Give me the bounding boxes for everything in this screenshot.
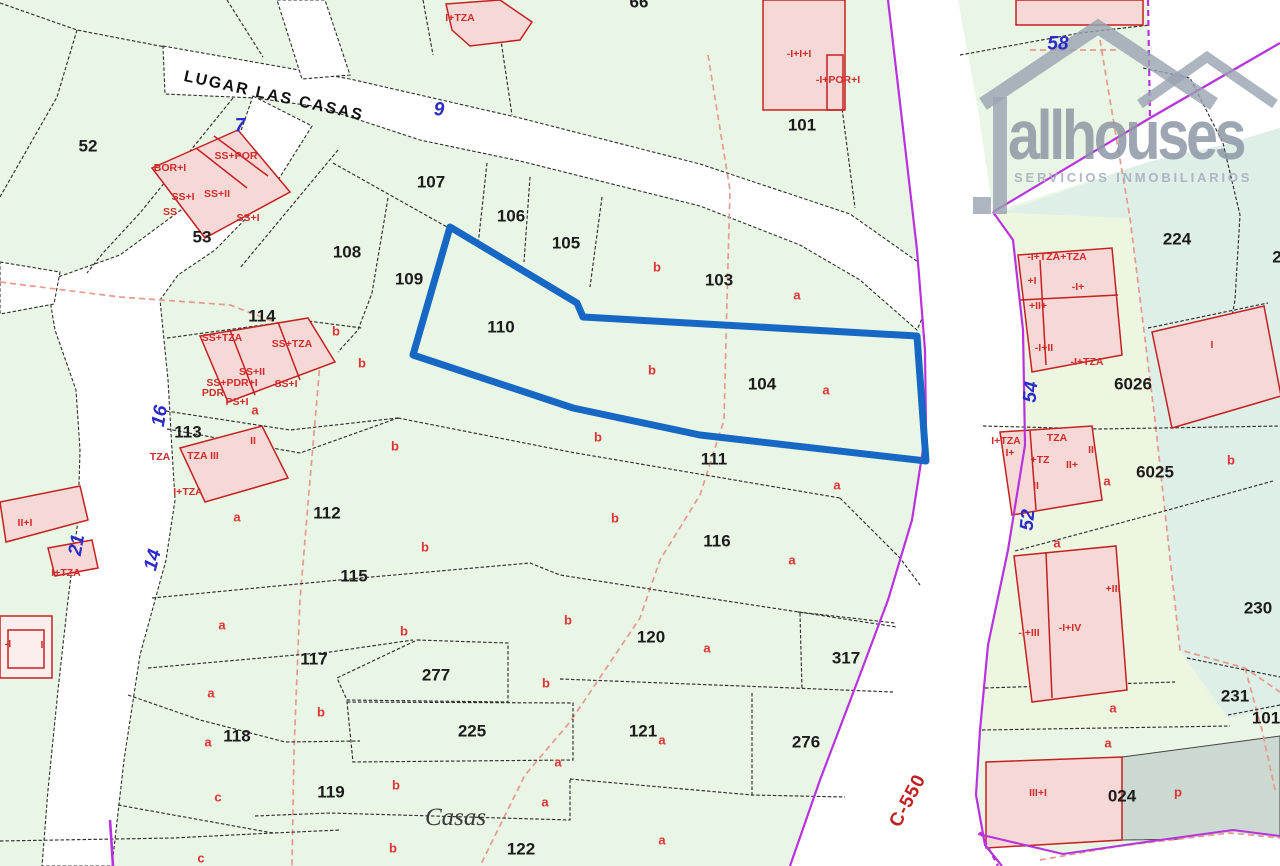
subparcel-letter-c: c bbox=[197, 852, 204, 865]
parcel-number-115: 115 bbox=[340, 568, 367, 585]
parcel-number-231: 231 bbox=[1221, 688, 1249, 705]
subparcel-letter-a: a bbox=[833, 479, 840, 492]
building-label-I+TZA: I+TZA bbox=[173, 487, 202, 498]
parcel-number-277: 277 bbox=[422, 667, 450, 684]
building-label-SS: SS bbox=[163, 207, 177, 218]
building-label-I: I bbox=[1211, 340, 1214, 351]
building-label-BOR+I: BOR+I bbox=[154, 163, 186, 174]
building-label-+III: +III bbox=[1106, 584, 1121, 595]
subparcel-letter-a: a bbox=[1103, 475, 1110, 488]
road-number-21: 21 bbox=[66, 533, 88, 557]
building-label-+TZ: +TZ bbox=[1031, 455, 1050, 466]
building-label--I+I+I: -I+I+I bbox=[787, 49, 812, 60]
building-label-II+: II+ bbox=[1066, 460, 1078, 471]
parcel-number-224: 224 bbox=[1163, 231, 1191, 248]
subparcel-letter-a: a bbox=[541, 796, 548, 809]
building-label--I: -I bbox=[5, 639, 11, 650]
parcel-number-114: 114 bbox=[248, 308, 275, 325]
building-label-III+I: III+I bbox=[1029, 788, 1047, 799]
parcel-number-2: 2 bbox=[1272, 249, 1280, 266]
subparcel-letter-b: b bbox=[421, 541, 429, 554]
subparcel-letter-a: a bbox=[218, 619, 225, 632]
subparcel-letter-b: b bbox=[542, 677, 550, 690]
building-label-SS+I: SS+I bbox=[274, 379, 297, 390]
building-label--I+III: -I+III bbox=[1018, 628, 1039, 639]
subparcel-letter-a: a bbox=[703, 642, 710, 655]
building-label-I: I bbox=[41, 640, 44, 651]
subparcel-letter-a: a bbox=[251, 404, 258, 417]
parcel-number-111: 111 bbox=[701, 451, 728, 468]
building-label-I+TZA: I+TZA bbox=[445, 13, 474, 24]
parcel-number-120: 120 bbox=[637, 629, 665, 646]
subparcel-letter-a: a bbox=[1109, 702, 1116, 715]
parcel-number-024: 024 bbox=[1108, 788, 1136, 805]
parcel-number-105: 105 bbox=[552, 235, 580, 252]
road-number-7: 7 bbox=[235, 117, 246, 136]
cadastral-map: 5253107106105108109110103104111112113114… bbox=[0, 0, 1280, 866]
parcel-number-6025: 6025 bbox=[1136, 464, 1174, 481]
building-label-TZA: TZA bbox=[1047, 433, 1067, 444]
parcel-number-110: 110 bbox=[487, 319, 514, 336]
parcel-number-119: 119 bbox=[317, 784, 344, 801]
parcel-number-122: 122 bbox=[507, 841, 535, 858]
subparcel-letter-b: b bbox=[392, 779, 400, 792]
parcel-number-117: 117 bbox=[300, 651, 327, 668]
building-label-+I: +I bbox=[1027, 276, 1036, 287]
building-label-SS+I: SS+I bbox=[236, 213, 259, 224]
building-label-I+TZA: I+TZA bbox=[991, 436, 1020, 447]
parcel-number-66: 66 bbox=[630, 0, 649, 11]
subparcel-letter-a: a bbox=[204, 736, 211, 749]
building-label-II: II bbox=[1088, 445, 1094, 456]
subparcel-letter-b: b bbox=[564, 614, 572, 627]
parcel-number-116: 116 bbox=[703, 533, 730, 550]
parcel-number-121: 121 bbox=[629, 723, 657, 740]
subparcel-letter-b: b bbox=[400, 625, 408, 638]
building-label-SS+POR: SS+POR bbox=[215, 151, 258, 162]
subparcel-letter-b: b bbox=[391, 440, 399, 453]
parcel-number-53: 53 bbox=[193, 229, 212, 246]
building-label-TZA III: TZA III bbox=[187, 451, 219, 462]
parcel-number-112: 112 bbox=[313, 505, 340, 522]
subparcel-letter-a: a bbox=[233, 511, 240, 524]
place-name-label: Casas bbox=[425, 804, 486, 832]
building-label--I+POR+I: -I+POR+I bbox=[816, 75, 860, 86]
road-number-16: 16 bbox=[149, 404, 171, 428]
road-number-14: 14 bbox=[141, 547, 165, 572]
parcel-number-109: 109 bbox=[395, 271, 423, 288]
subparcel-letter-a: a bbox=[822, 384, 829, 397]
parcel-number-276: 276 bbox=[792, 734, 820, 751]
building-label-PS+I: PS+I bbox=[225, 397, 248, 408]
logo-brand-text: allhouses bbox=[1008, 100, 1243, 170]
parcel-number-118: 118 bbox=[223, 728, 250, 745]
parcel-number-113: 113 bbox=[174, 424, 201, 441]
subparcel-letter-b: b bbox=[332, 325, 340, 338]
road-number-58: 58 bbox=[1047, 35, 1068, 54]
building-label-I+: I+ bbox=[1005, 448, 1014, 459]
subparcel-letter-a: a bbox=[554, 756, 561, 769]
building-label-II: II bbox=[250, 436, 256, 447]
road-number-54: 54 bbox=[1021, 381, 1042, 404]
building-label--I+TZA: -I+TZA bbox=[1071, 357, 1104, 368]
subparcel-letter-p: p bbox=[1174, 786, 1182, 799]
subparcel-letter-b: b bbox=[611, 512, 619, 525]
subparcel-letter-a: a bbox=[207, 687, 214, 700]
building-label-II+I: II+I bbox=[18, 518, 33, 529]
subparcel-letter-b: b bbox=[648, 364, 656, 377]
building-label-SS+II: SS+II bbox=[204, 189, 230, 200]
parcel-number-103: 103 bbox=[705, 272, 733, 289]
subparcel-letter-a: a bbox=[1104, 737, 1111, 750]
parcel-number-230: 230 bbox=[1244, 600, 1272, 617]
subparcel-letter-b: b bbox=[653, 261, 661, 274]
parcel-number-101: 101 bbox=[788, 117, 816, 134]
parcel-number-101: 101 bbox=[1252, 710, 1280, 727]
parcel-number-52: 52 bbox=[79, 138, 98, 155]
subparcel-letter-a: a bbox=[788, 554, 795, 567]
parcel-number-317: 317 bbox=[832, 650, 860, 667]
building-label-+II+: +II+ bbox=[1029, 301, 1047, 312]
building-label-TZA: TZA bbox=[150, 452, 170, 463]
parcel-number-6026: 6026 bbox=[1114, 376, 1152, 393]
parcel-number-104: 104 bbox=[748, 376, 776, 393]
building-label-PDR: PDR bbox=[202, 388, 224, 399]
subparcel-letter-a: a bbox=[793, 289, 800, 302]
subparcel-letter-b: b bbox=[389, 842, 397, 855]
subparcel-letter-c: c bbox=[214, 791, 221, 804]
subparcel-letter-a: a bbox=[658, 834, 665, 847]
building-label--I+II: -I+II bbox=[1035, 343, 1053, 354]
logo-tagline-text: SERVICIOS INMOBILIARIOS bbox=[1014, 170, 1252, 185]
subparcel-letter-b: b bbox=[358, 357, 366, 370]
building-label-II: II bbox=[1033, 481, 1039, 492]
building-label--I+TZA+TZA: -I+TZA+TZA bbox=[1027, 252, 1087, 263]
building-label-SS+I: SS+I bbox=[171, 192, 194, 203]
parcel-number-225: 225 bbox=[458, 723, 486, 740]
subparcel-letter-b: b bbox=[317, 706, 325, 719]
building-label-SS+TZA: SS+TZA bbox=[202, 333, 243, 344]
subparcel-letter-b: b bbox=[594, 431, 602, 444]
parcel-number-107: 107 bbox=[417, 174, 445, 191]
building-label-SS+II: SS+II bbox=[239, 367, 265, 378]
building-label-SS+TZA: SS+TZA bbox=[272, 339, 313, 350]
subparcel-letter-a: a bbox=[658, 734, 665, 747]
subparcel-letter-b: b bbox=[1227, 454, 1235, 467]
building-label-I+TZA: I+TZA bbox=[51, 568, 80, 579]
building-label--I+IV: -I+IV bbox=[1059, 623, 1081, 634]
building-label--I+: -I+ bbox=[1072, 282, 1085, 293]
subparcel-letter-a: a bbox=[1053, 537, 1060, 550]
road-number-52: 52 bbox=[1018, 509, 1039, 532]
parcel-number-106: 106 bbox=[497, 208, 525, 225]
road-number-9: 9 bbox=[434, 101, 445, 120]
parcel-number-108: 108 bbox=[333, 244, 361, 261]
